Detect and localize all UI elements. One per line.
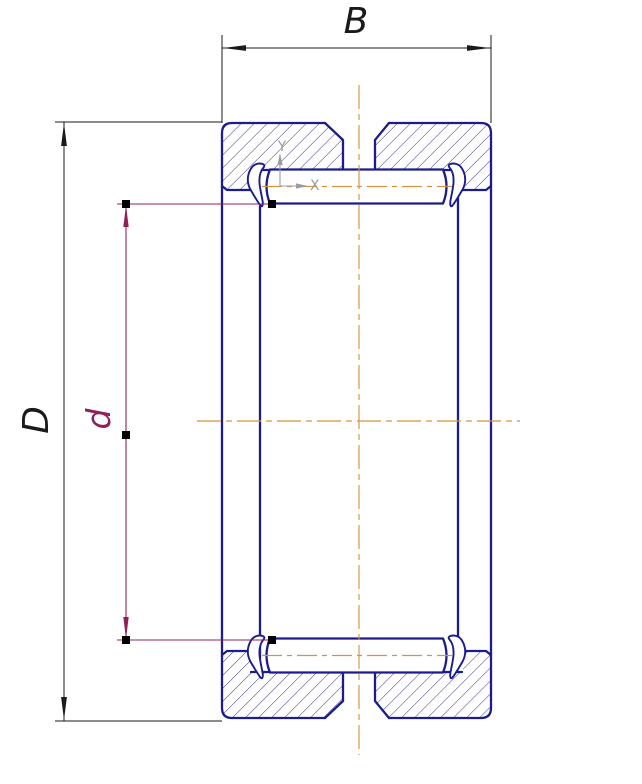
dimension-D: D xyxy=(16,122,222,721)
dim-D-arrow-top xyxy=(61,123,67,146)
label-B: B xyxy=(344,1,369,42)
lip-top-right xyxy=(449,164,466,207)
dim-B-arrow-left xyxy=(223,45,246,51)
cad-drawing-canvas: B D d X Y xyxy=(0,0,642,784)
dimension-d-selected[interactable]: d xyxy=(79,200,276,644)
label-x-axis: X xyxy=(310,178,320,194)
label-D: D xyxy=(16,406,57,434)
dim-d-handle-top[interactable] xyxy=(122,200,130,208)
dim-d-handle-bottom[interactable] xyxy=(122,636,130,644)
dim-d-arrow-bottom xyxy=(123,617,128,639)
dim-d-extension-lines xyxy=(117,204,272,640)
label-y-axis: Y xyxy=(277,139,287,155)
dimension-B: B xyxy=(222,1,491,123)
dim-d-arrow-top xyxy=(123,205,128,227)
dim-B-arrow-right xyxy=(467,45,490,51)
dim-d-handle-snap-bottom[interactable] xyxy=(268,636,276,644)
dim-D-arrow-bottom xyxy=(61,697,67,720)
label-d: d xyxy=(79,407,118,429)
dim-d-handle-snap-top[interactable] xyxy=(268,200,276,208)
dim-d-handle-middle[interactable] xyxy=(122,431,130,439)
needle-bearing-section-drawing: B D d X Y xyxy=(0,0,642,784)
lip-top-left xyxy=(248,164,265,207)
